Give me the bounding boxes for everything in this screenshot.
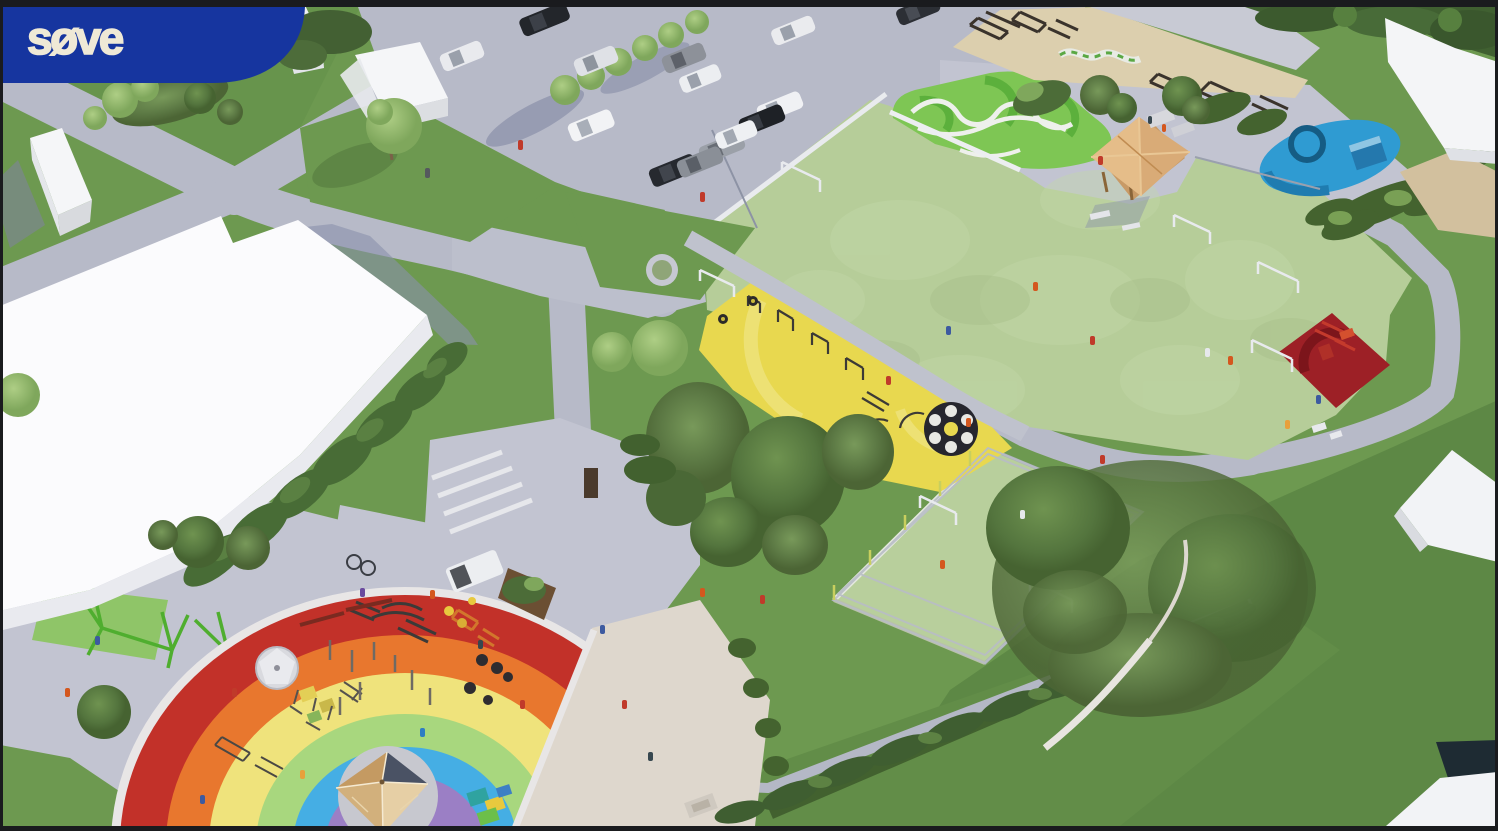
svg-text:søve: søve bbox=[27, 12, 124, 64]
